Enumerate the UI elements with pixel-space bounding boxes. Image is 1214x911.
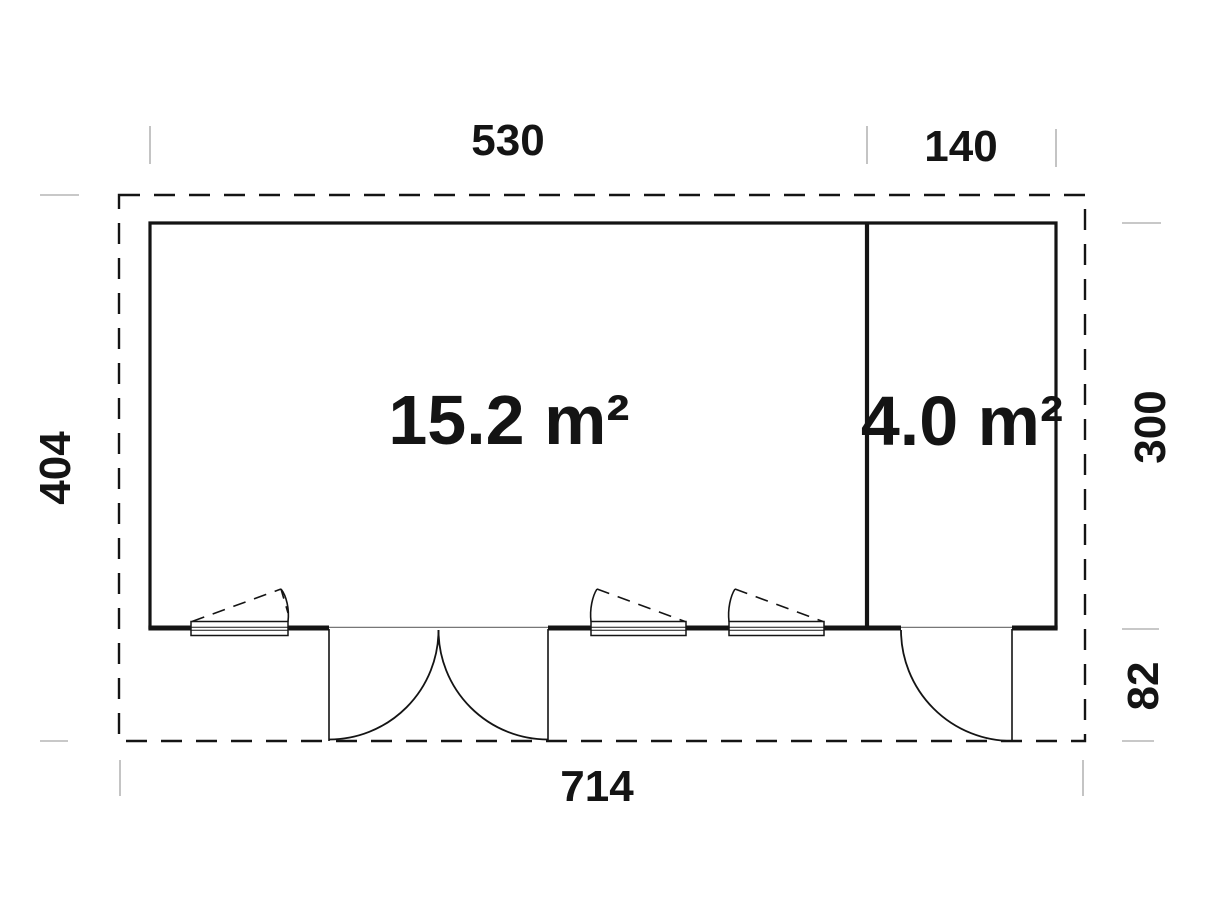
single-door: [901, 629, 1012, 741]
dimension-top-left: 530: [471, 119, 544, 163]
window-1: [191, 589, 288, 636]
window-frame: [591, 622, 686, 636]
dimension-right-lower: 82: [1122, 662, 1166, 711]
window-2: [591, 589, 686, 636]
window-opening-dashed: [735, 589, 823, 622]
dimension-top-right: 140: [924, 125, 997, 169]
window-frame: [729, 622, 824, 636]
window-swing-arc: [729, 589, 735, 622]
door-swing-arc: [329, 630, 439, 740]
outer-boundary-dashed: [119, 195, 1085, 741]
dimension-ticks: [40, 126, 1161, 796]
door-swing-arc: [901, 630, 1012, 741]
window-opening-dashed: [597, 589, 685, 622]
double-door: [329, 629, 548, 741]
door-swing-arc: [439, 630, 549, 740]
dimension-right-upper: 300: [1129, 390, 1173, 463]
window-3: [729, 589, 824, 636]
window-frame: [191, 622, 288, 636]
dimension-left: 404: [34, 431, 78, 504]
window-swing-arc: [591, 589, 597, 622]
room-area-label-main: 15.2 m²: [388, 385, 629, 455]
floor-plan: 530 140 404 300 82 714 15.2 m² 4.0 m²: [0, 0, 1214, 911]
windows: [191, 589, 824, 636]
dimension-bottom: 714: [560, 765, 633, 809]
room-area-label-side: 4.0 m²: [861, 386, 1063, 456]
window-opening-dashed: [192, 589, 281, 622]
